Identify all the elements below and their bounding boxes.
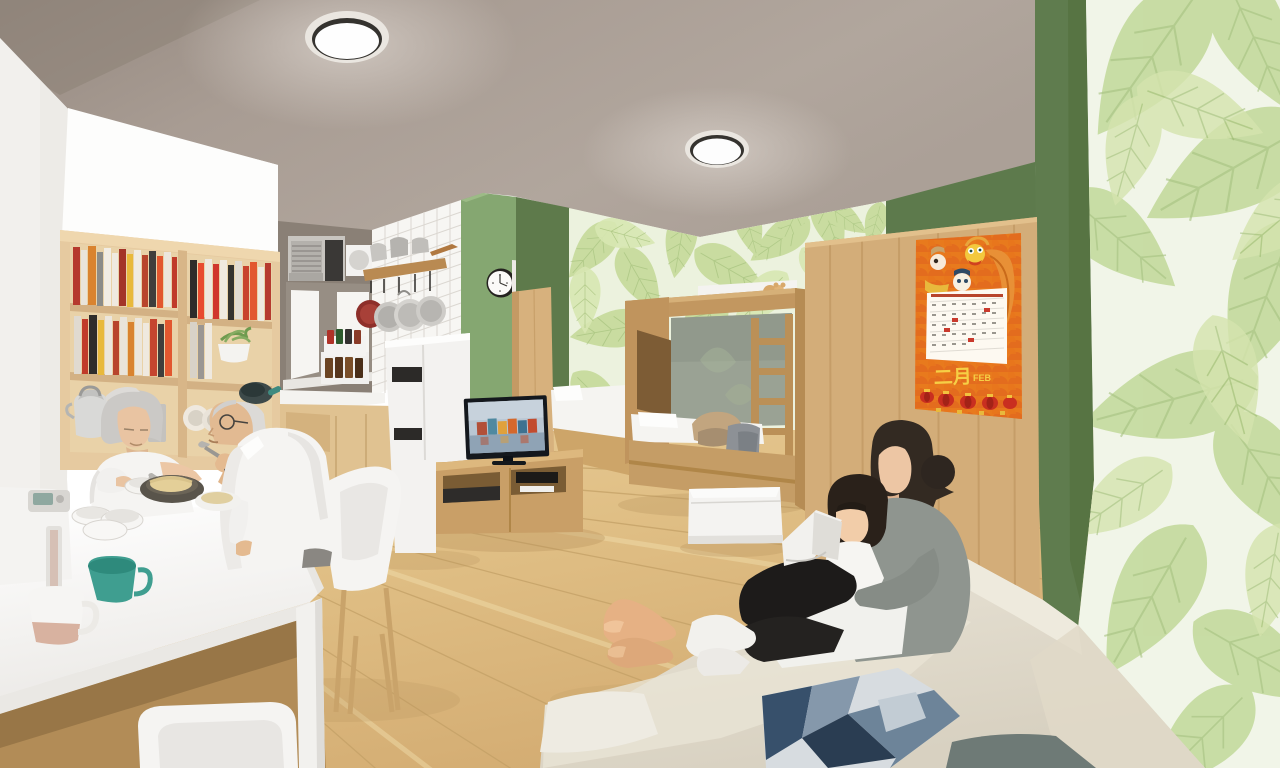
svg-text:FEB: FEB	[973, 373, 992, 383]
svg-text:二月: 二月	[933, 367, 972, 389]
